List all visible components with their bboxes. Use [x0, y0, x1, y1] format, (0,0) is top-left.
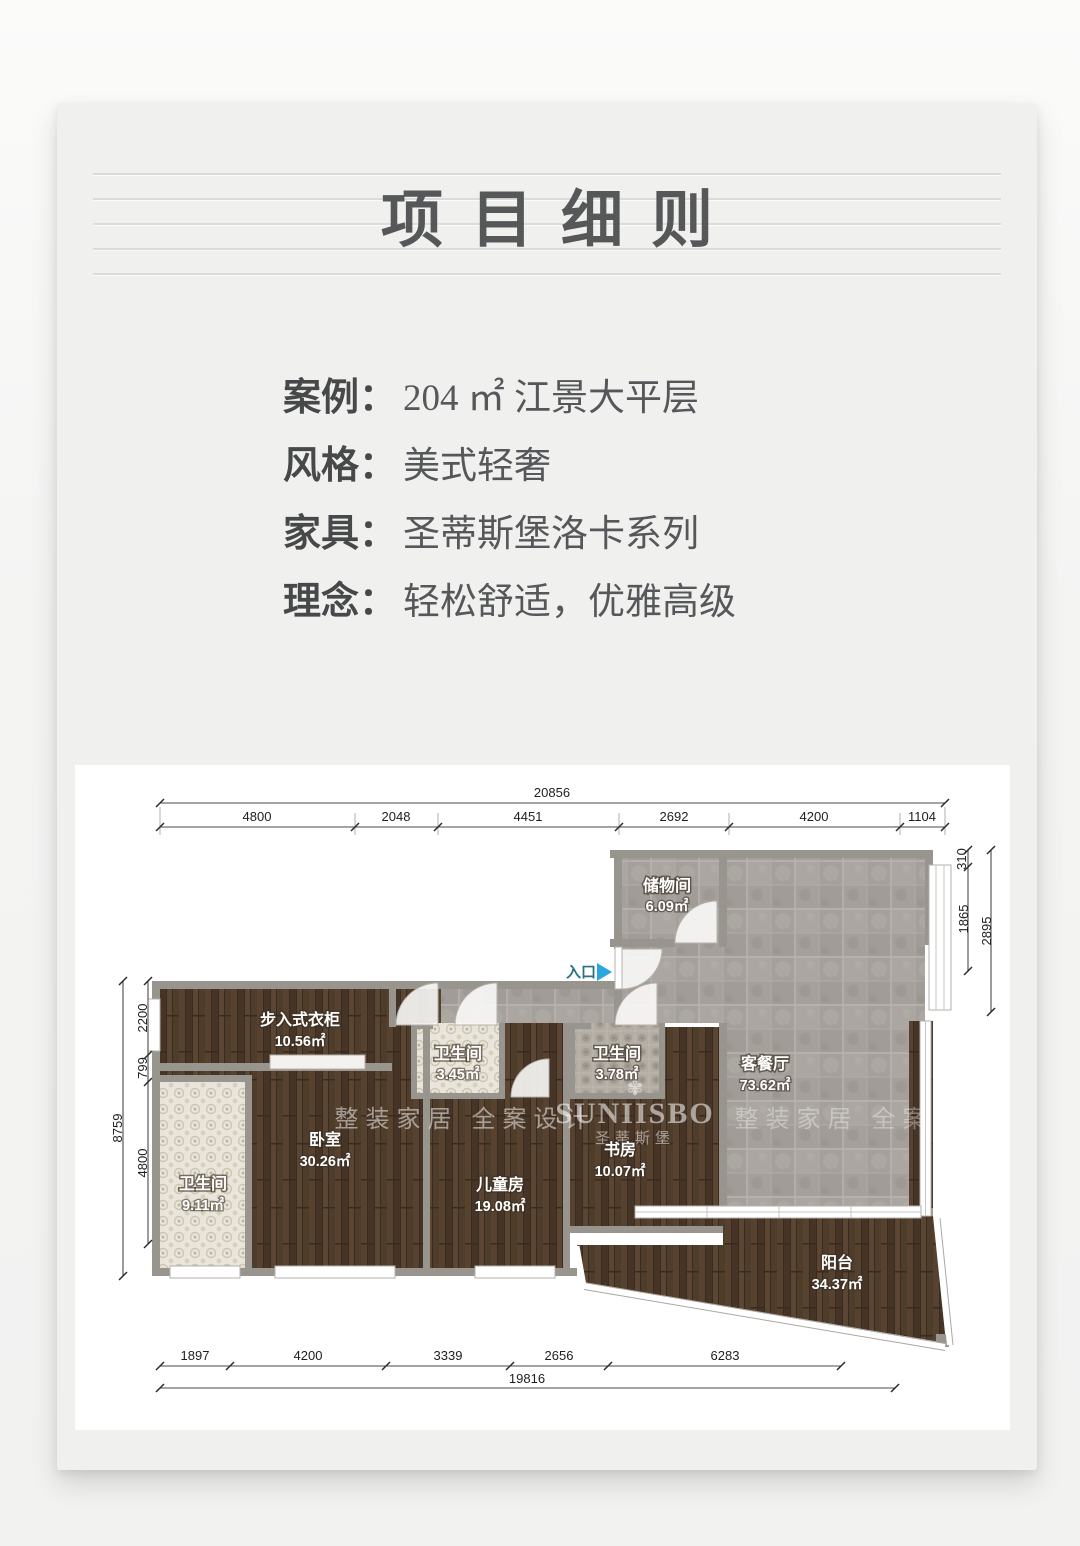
room-label-storage: 储物间	[642, 876, 691, 895]
dim-right-seg: 310	[954, 848, 969, 870]
room-label-bathroom-345: 卫生间	[434, 1044, 482, 1063]
bedroom-window	[275, 1266, 395, 1278]
children-window	[475, 1266, 555, 1278]
room-area-study: 10.07㎡	[595, 1162, 646, 1180]
room-label-living-dining: 客餐厅	[741, 1054, 789, 1073]
entrance-arrow-icon	[597, 963, 612, 981]
room-label-study: 书房	[604, 1140, 636, 1159]
rule-line	[93, 173, 1001, 175]
dim-top-seg: 4451	[514, 809, 543, 824]
room-label-walkin-closet: 步入式衣柜	[260, 1010, 340, 1029]
info-row-concept: 理念： 轻松舒适，优雅高级	[283, 570, 736, 611]
info-value: 美式轻奢	[403, 435, 551, 489]
info-label: 家具：	[283, 502, 397, 557]
floor-plan-canvas: 整装家居 全案设计 整装家居 全案设计 ✾ SUNIISBO 圣蒂斯堡 入口 储…	[75, 765, 1010, 1430]
room-area-storage: 6.09㎡	[646, 897, 689, 915]
room-area-living-dining: 73.62㎡	[740, 1076, 791, 1094]
watermark-brand: SUNIISBO	[555, 1097, 714, 1130]
dim-right-seg: 1865	[956, 905, 971, 934]
dim-bottom-seg: 3339	[434, 1348, 463, 1363]
floor-plan: 整装家居 全案设计 整装家居 全案设计 ✾ SUNIISBO 圣蒂斯堡 入口 储…	[75, 765, 1010, 1430]
dim-bottom-seg: 6283	[711, 1348, 740, 1363]
room-label-bathroom-911: 卫生间	[179, 1174, 227, 1193]
bathroom-window	[170, 1266, 240, 1278]
info-row-furniture: 家具： 圣蒂斯堡洛卡系列	[283, 502, 736, 543]
closet-cabinet	[270, 1055, 365, 1069]
room-area-bedroom: 30.26㎡	[300, 1152, 351, 1170]
entrance-door-leaf	[615, 947, 622, 989]
dim-bottom-seg: 1897	[181, 1348, 210, 1363]
dim-left-seg: 799	[135, 1057, 150, 1079]
entrance-marker: 入口	[566, 963, 612, 981]
project-detail-card: 项目细则 案例： 204 ㎡ 江景大平层 风格： 美式轻奢 家具： 圣蒂斯堡洛卡…	[57, 103, 1037, 1470]
dim-left-total: 8759	[110, 1114, 125, 1143]
room-area-bathroom-911: 9.11㎡	[182, 1196, 224, 1214]
info-value: 轻松舒适，优雅高级	[403, 571, 736, 625]
dim-top-seg: 4200	[800, 809, 829, 824]
bay-window-right	[929, 865, 951, 1010]
info-label: 理念：	[283, 570, 397, 625]
dim-left-seg: 4800	[135, 1149, 150, 1178]
page-title: 项目细则	[57, 187, 1037, 255]
dim-top: 20856 4800 2048 4451 2692 4200 1104	[156, 785, 949, 835]
rule-line	[93, 273, 1001, 275]
watermark-slogan-right: 整装家居 全案设计	[735, 1106, 996, 1133]
dim-right: 310 1865 2895	[954, 846, 995, 1016]
room-label-bathroom-378: 卫生间	[593, 1044, 641, 1063]
dim-bottom-seg: 2656	[545, 1348, 574, 1363]
room-label-bedroom: 卧室	[309, 1130, 341, 1149]
dim-left-seg: 2200	[135, 1004, 150, 1033]
dim-right-total: 2895	[979, 917, 994, 946]
entrance-label: 入口	[566, 964, 596, 981]
info-row-style: 风格： 美式轻奢	[283, 434, 736, 475]
living-bottom-window	[635, 1206, 921, 1218]
project-info: 案例： 204 ㎡ 江景大平层 风格： 美式轻奢 家具： 圣蒂斯堡洛卡系列 理念…	[283, 366, 736, 638]
info-value: 204 ㎡ 江景大平层	[403, 367, 699, 421]
dim-left: 2200 799 4800 8759	[110, 977, 152, 1280]
room-label-children-room: 儿童房	[475, 1175, 524, 1194]
info-label: 风格：	[283, 434, 397, 489]
dim-top-seg: 2692	[660, 809, 689, 824]
room-label-balcony: 阳台	[821, 1253, 853, 1272]
info-row-case: 案例： 204 ㎡ 江景大平层	[283, 366, 736, 407]
page-background: 项目细则 案例： 204 ㎡ 江景大平层 风格： 美式轻奢 家具： 圣蒂斯堡洛卡…	[0, 0, 1080, 1546]
dim-bottom-seg: 4200	[294, 1348, 323, 1363]
room-area-balcony: 34.37㎡	[812, 1275, 863, 1293]
info-label: 案例：	[283, 366, 397, 421]
room-area-bathroom-378: 3.78㎡	[596, 1065, 639, 1083]
info-value: 圣蒂斯堡洛卡系列	[403, 503, 699, 557]
dim-top-total: 20856	[534, 785, 570, 800]
dim-top-seg: 2048	[382, 809, 411, 824]
dim-top-seg: 4800	[243, 809, 272, 824]
balcony-floor	[577, 1216, 946, 1343]
room-area-children-room: 19.08㎡	[475, 1197, 526, 1215]
dim-top-seg: 1104	[908, 809, 936, 824]
dim-bottom-total: 19816	[509, 1371, 545, 1386]
room-area-bathroom-345: 3.45㎡	[437, 1065, 480, 1083]
room-area-walkin-closet: 10.56㎡	[275, 1032, 326, 1050]
dim-bottom: 1897 4200 3339 2656 6283 19816	[156, 1348, 899, 1392]
